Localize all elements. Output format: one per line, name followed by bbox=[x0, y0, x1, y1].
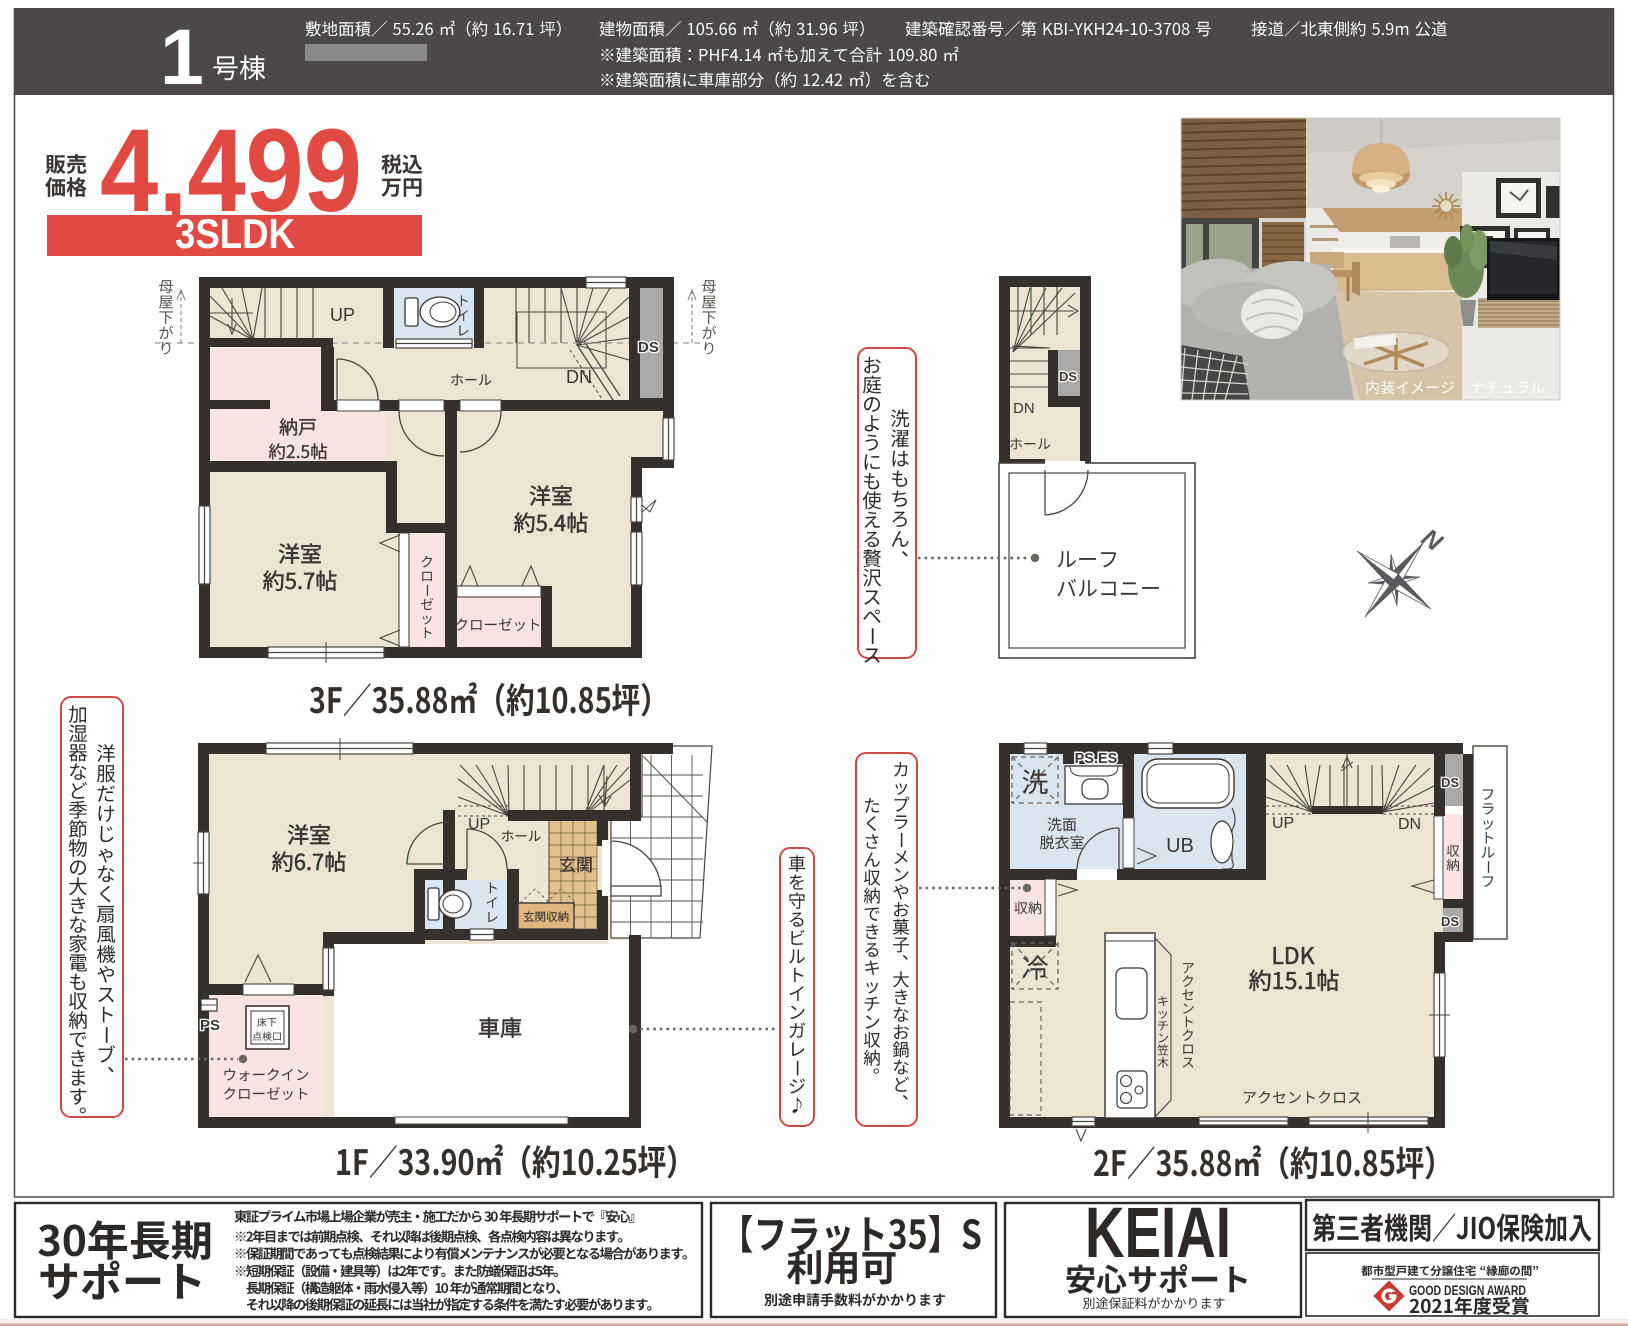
svg-text:UB: UB bbox=[1166, 835, 1194, 857]
svg-text:DS: DS bbox=[1441, 914, 1459, 929]
svg-text:UP: UP bbox=[330, 305, 355, 325]
svg-text:UP: UP bbox=[468, 816, 490, 833]
svg-text:PS.ES: PS.ES bbox=[1075, 751, 1118, 767]
svg-text:DN: DN bbox=[1013, 400, 1035, 417]
svg-text:3SLDK: 3SLDK bbox=[175, 210, 295, 257]
svg-text:GOOD DESIGN AWARD: GOOD DESIGN AWARD bbox=[1409, 1282, 1526, 1298]
svg-text:DN: DN bbox=[566, 367, 592, 387]
svg-text:PS: PS bbox=[200, 1017, 220, 1034]
svg-text:1: 1 bbox=[160, 12, 204, 101]
svg-text:DN: DN bbox=[1398, 816, 1421, 833]
svg-text:DS: DS bbox=[638, 339, 659, 356]
svg-text:KEIAI: KEIAI bbox=[1085, 1194, 1231, 1273]
svg-text:DS: DS bbox=[1059, 369, 1077, 384]
svg-text:DS: DS bbox=[1441, 775, 1459, 790]
svg-text:UP: UP bbox=[1272, 815, 1294, 832]
